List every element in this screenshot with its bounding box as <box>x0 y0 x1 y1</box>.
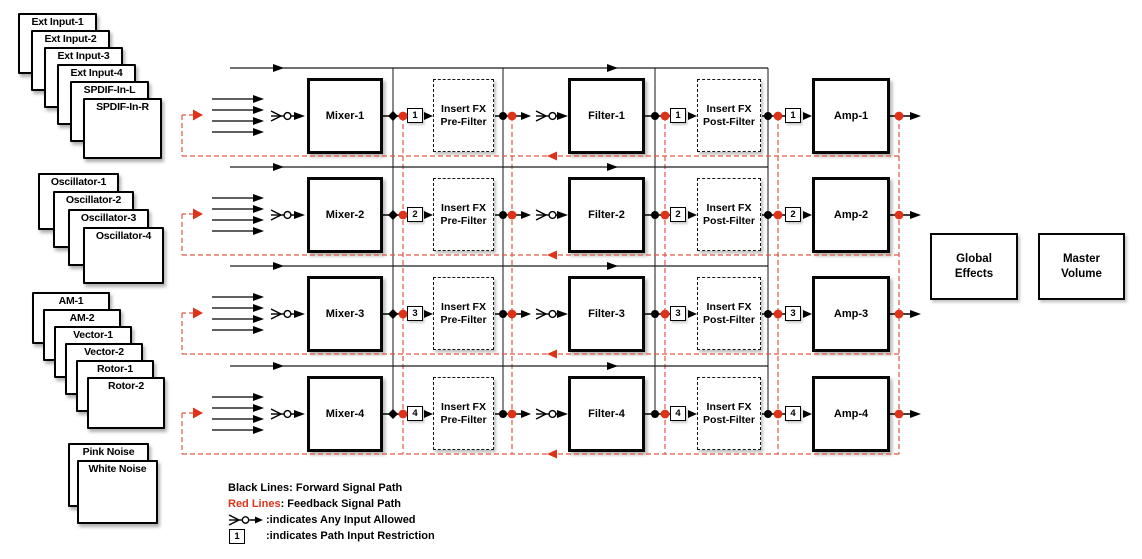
path-restriction-box-3-2: 3 <box>670 306 686 321</box>
master-volume-block: Master Volume <box>1038 233 1125 300</box>
signal-flow-diagram: Ext Input-1Ext Input-2Ext Input-3Ext Inp… <box>0 0 1142 559</box>
path-restriction-box-4-1: 4 <box>407 406 423 421</box>
row-3-lines <box>182 262 921 359</box>
row-2-lines <box>182 163 921 260</box>
path-restriction-box-4-3: 4 <box>785 406 801 421</box>
amp-4-block: Amp-4 <box>812 376 890 452</box>
insert-fx-post-filter-block-line2: Post-Filter <box>703 414 755 427</box>
filter-3-block: Filter-3 <box>568 276 645 352</box>
amp-3-block: Amp-3 <box>812 276 890 352</box>
insert-fx-pre-filter-block-line2: Pre-Filter <box>440 314 486 327</box>
mixer-3-block: Mixer-3 <box>307 276 383 352</box>
legend-black-text: Forward Signal Path <box>296 482 402 494</box>
source-card-label: Oscillator-2 <box>55 193 132 206</box>
legend-red-label: Red Lines <box>228 498 281 510</box>
path-restriction-box-1-1: 1 <box>407 108 423 123</box>
insert-fx-post-filter-block-line1: Insert FX <box>707 301 752 314</box>
source-card-label: Vector-1 <box>56 328 130 341</box>
insert-fx-pre-filter-block-line2: Pre-Filter <box>440 215 486 228</box>
path-restriction-box-1-2: 1 <box>670 108 686 123</box>
legend-any-input-text: :indicates Any Input Allowed <box>266 514 416 526</box>
legend-forward-path: Black Lines: Forward Signal Path <box>228 480 435 496</box>
insert-fx-post-filter-block-line2: Post-Filter <box>703 314 755 327</box>
source-card-label: Ext Input-3 <box>46 49 121 62</box>
path-restriction-icon: 1 <box>229 529 245 544</box>
insert-fx-pre-filter-block: Insert FXPre-Filter <box>433 79 494 152</box>
row-1-lines <box>182 64 921 161</box>
source-card-label: Vector-2 <box>67 345 141 358</box>
insert-fx-pre-filter-block-line2: Pre-Filter <box>440 414 486 427</box>
legend-restriction: 1:indicates Path Input Restriction <box>228 528 435 544</box>
source-card-label: Rotor-2 <box>89 379 163 392</box>
source-card-label: SPDIF-In-L <box>72 83 147 96</box>
insert-fx-pre-filter-block-line1: Insert FX <box>441 202 486 215</box>
insert-fx-post-filter-block-line1: Insert FX <box>707 401 752 414</box>
path-restriction-box-2-3: 2 <box>785 207 801 222</box>
path-restriction-box-2-2: 2 <box>670 207 686 222</box>
source-card-label: Oscillator-1 <box>40 175 117 188</box>
legend-restriction-text: :indicates Path Input Restriction <box>266 530 435 542</box>
any-input-icon <box>228 513 266 527</box>
master-volume-label-line1: Master <box>1063 252 1100 267</box>
path-restriction-box-3-1: 3 <box>407 306 423 321</box>
legend-red-text: : Feedback Signal Path <box>281 498 401 510</box>
insert-fx-post-filter-block: Insert FXPost-Filter <box>697 79 761 152</box>
path-restriction-box-3-3: 3 <box>785 306 801 321</box>
source-card-label: AM-2 <box>45 311 119 324</box>
source-card: Oscillator-4 <box>83 227 164 284</box>
global-effects-label-line2: Effects <box>955 267 993 282</box>
insert-fx-post-filter-block-line2: Post-Filter <box>703 215 755 228</box>
insert-fx-pre-filter-block-line1: Insert FX <box>441 103 486 116</box>
source-card-label: Oscillator-4 <box>85 229 162 242</box>
source-card: White Noise <box>77 460 158 524</box>
amp-1-block: Amp-1 <box>812 78 890 154</box>
insert-fx-pre-filter-block: Insert FXPre-Filter <box>433 277 494 350</box>
insert-fx-post-filter-block: Insert FXPost-Filter <box>697 178 761 251</box>
path-restriction-box-4-2: 4 <box>670 406 686 421</box>
master-volume-label-line2: Volume <box>1061 267 1102 282</box>
path-restriction-box-1-3: 1 <box>785 108 801 123</box>
insert-fx-pre-filter-block: Insert FXPre-Filter <box>433 178 494 251</box>
insert-fx-post-filter-block-line1: Insert FX <box>707 202 752 215</box>
insert-fx-pre-filter-block-line2: Pre-Filter <box>440 116 486 129</box>
filter-1-block: Filter-1 <box>568 78 645 154</box>
global-effects-block: Global Effects <box>930 233 1018 300</box>
legend: Black Lines: Forward Signal Path Red Lin… <box>228 480 435 544</box>
source-card-label: Ext Input-2 <box>33 32 108 45</box>
source-card: SPDIF-In-R <box>83 98 162 159</box>
insert-fx-pre-filter-block-line1: Insert FX <box>441 401 486 414</box>
insert-fx-pre-filter-block: Insert FXPre-Filter <box>433 377 494 450</box>
global-effects-label-line1: Global <box>956 252 992 267</box>
source-card-label: AM-1 <box>34 294 108 307</box>
insert-fx-post-filter-block-line1: Insert FX <box>707 103 752 116</box>
legend-any-input: :indicates Any Input Allowed <box>228 512 435 528</box>
source-card-label: Rotor-1 <box>78 362 152 375</box>
legend-black-label: Black Lines: <box>228 482 293 494</box>
source-card-label: Ext Input-1 <box>20 15 95 28</box>
source-card-label: Oscillator-3 <box>70 211 147 224</box>
mixer-2-block: Mixer-2 <box>307 177 383 253</box>
filter-2-block: Filter-2 <box>568 177 645 253</box>
row-4-lines <box>182 362 921 459</box>
source-card-label: Ext Input-4 <box>59 66 134 79</box>
source-card: Rotor-2 <box>87 377 165 429</box>
insert-fx-post-filter-block: Insert FXPost-Filter <box>697 377 761 450</box>
filter-4-block: Filter-4 <box>568 376 645 452</box>
amp-2-block: Amp-2 <box>812 177 890 253</box>
insert-fx-post-filter-block-line2: Post-Filter <box>703 116 755 129</box>
source-card-label: SPDIF-In-R <box>85 100 160 113</box>
mixer-4-block: Mixer-4 <box>307 376 383 452</box>
insert-fx-pre-filter-block-line1: Insert FX <box>441 301 486 314</box>
insert-fx-post-filter-block: Insert FXPost-Filter <box>697 277 761 350</box>
legend-feedback-path: Red Lines: Feedback Signal Path <box>228 496 435 512</box>
source-card-label: White Noise <box>79 462 156 475</box>
mixer-1-block: Mixer-1 <box>307 78 383 154</box>
path-restriction-box-2-1: 2 <box>407 207 423 222</box>
source-card-label: Pink Noise <box>70 445 147 458</box>
